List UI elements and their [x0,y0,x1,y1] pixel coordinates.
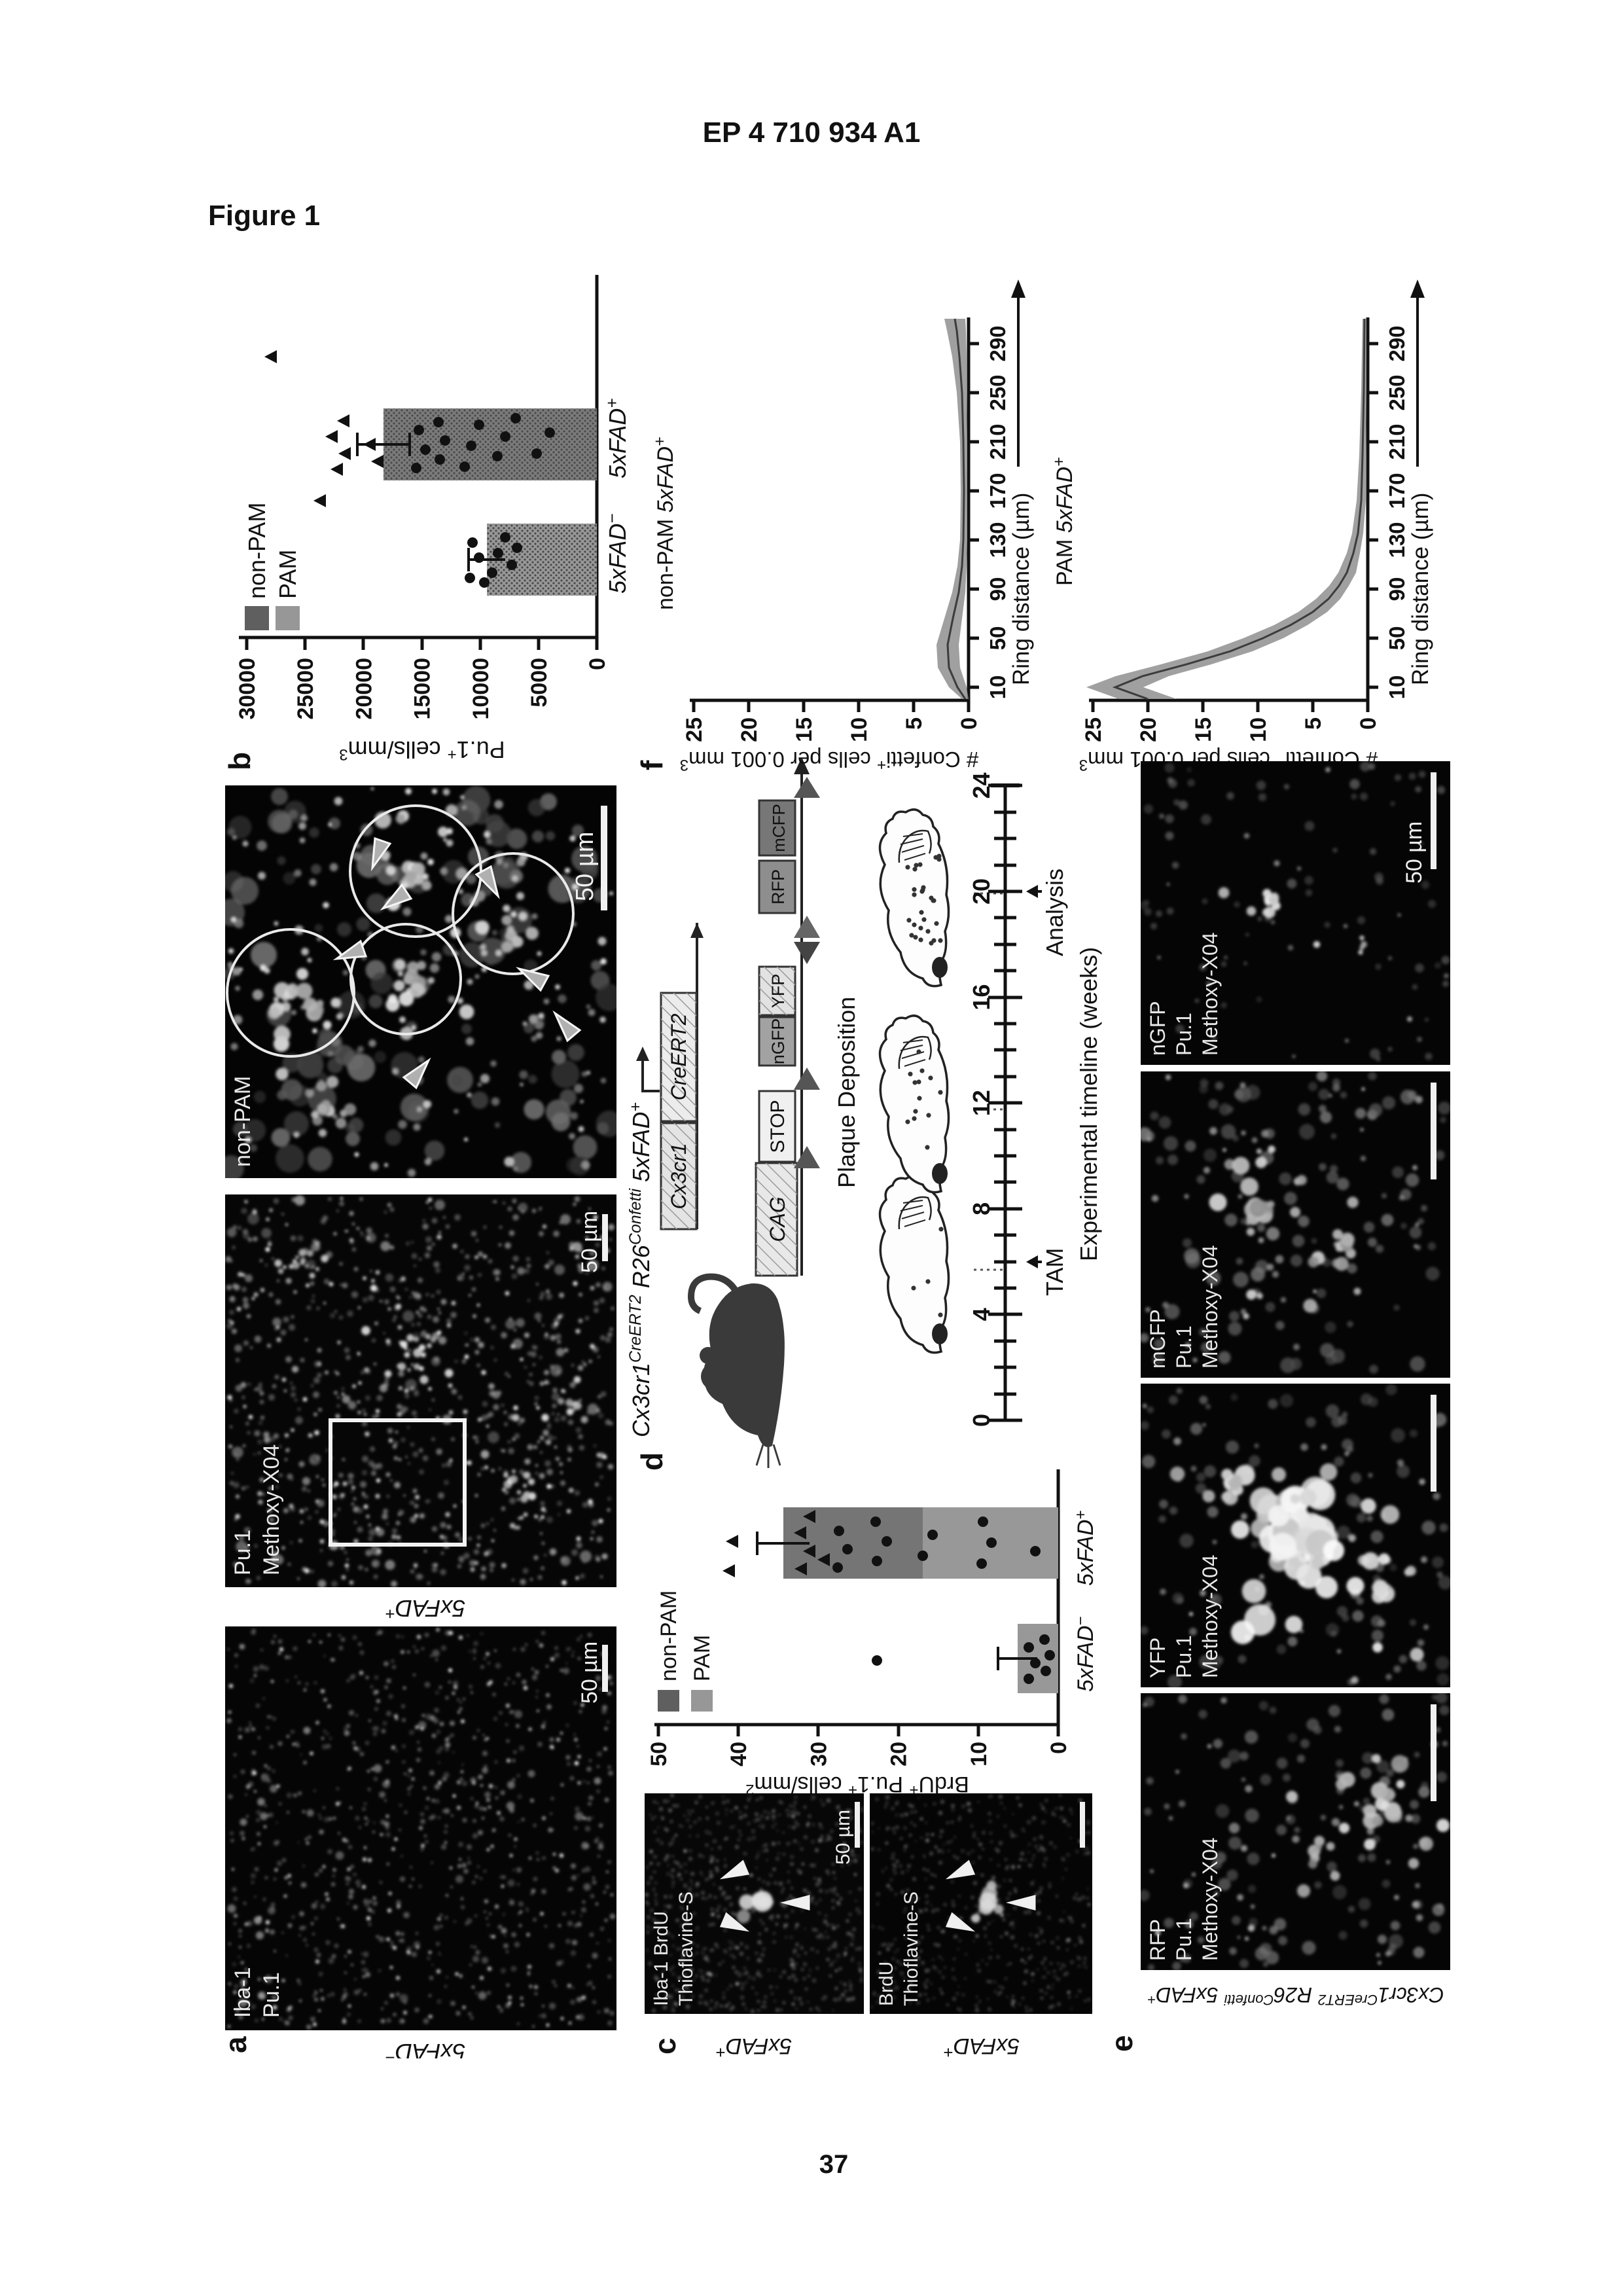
svg-text:16: 16 [968,984,995,1011]
svg-text:Iba-1: Iba-1 [230,1967,255,2018]
svg-text:10: 10 [986,675,1010,700]
svg-text:STOP: STOP [767,1100,789,1153]
svg-text:non-PAM: non-PAM [230,1076,255,1167]
svg-text:30: 30 [806,1742,831,1767]
svg-text:YFP: YFP [1146,1638,1169,1678]
svg-text:Cx3cr1: Cx3cr1 [667,1143,690,1209]
svg-text:PAM 5xFAD+: PAM 5xFAD+ [1050,457,1077,586]
svg-text:non-PAM: non-PAM [656,1590,681,1681]
svg-text:5000: 5000 [527,658,552,708]
svg-text:15: 15 [1191,717,1216,742]
svg-text:Ring distance (µm): Ring distance (µm) [1008,493,1034,685]
svg-text:40: 40 [726,1742,751,1767]
svg-text:PAM: PAM [274,550,301,599]
svg-text:0: 0 [585,658,610,670]
svg-text:20: 20 [968,878,995,905]
svg-text:Thioflavine-S: Thioflavine-S [901,1892,922,2006]
svg-text:8: 8 [968,1202,995,1215]
svg-text:0: 0 [1046,1742,1071,1754]
svg-text:50 µm: 50 µm [577,1211,602,1273]
svg-text:130: 130 [986,522,1010,558]
svg-text:YFP: YFP [768,974,788,1009]
svg-text:4: 4 [968,1308,995,1321]
svg-text:Iba-1 BrdU: Iba-1 BrdU [651,1911,672,2006]
svg-text:50 µm: 50 µm [1402,821,1427,884]
svg-text:25: 25 [1081,717,1106,742]
svg-text:nGFP: nGFP [1146,1001,1169,1056]
svg-text:Pu.1: Pu.1 [230,1530,255,1575]
svg-text:Cx3cr1CreERT2 R26Confetti 5xFA: Cx3cr1CreERT2 R26Confetti 5xFAD+ [1147,1983,1444,2008]
svg-text:b: b [223,752,257,770]
svg-text:mCFP: mCFP [769,804,789,852]
svg-text:e: e [1105,2035,1139,2052]
svg-text:50: 50 [647,1742,671,1767]
svg-text:# Confetti+ cells per 0.001 mm: # Confetti+ cells per 0.001 mm3 [680,747,979,774]
svg-text:f: f [635,760,669,770]
svg-text:Pu.1: Pu.1 [1172,1325,1196,1369]
svg-text:PAM: PAM [690,1635,715,1681]
svg-text:TAM: TAM [1041,1248,1068,1296]
svg-text:Pu.1: Pu.1 [1172,1635,1196,1678]
svg-text:10: 10 [1385,675,1409,700]
svg-text:10: 10 [1246,717,1271,742]
svg-text:Cx3cr1CreERT2 R26Confetti 5xFA: Cx3cr1CreERT2 R26Confetti 5xFAD+ [626,1102,654,1437]
svg-text:50: 50 [1385,626,1409,651]
svg-text:Plaque Deposition: Plaque Deposition [833,997,860,1188]
svg-text:170: 170 [1385,473,1409,509]
svg-text:50 µm: 50 µm [571,832,599,901]
svg-text:5xFAD+: 5xFAD+ [1072,1511,1098,1586]
svg-text:0: 0 [1356,717,1381,730]
svg-text:Pu.1: Pu.1 [1172,1013,1196,1056]
svg-text:10: 10 [967,1742,991,1767]
svg-text:20: 20 [1136,717,1161,742]
svg-text:20: 20 [737,717,762,742]
svg-text:Pu.1+ cells/mm3: Pu.1+ cells/mm3 [339,736,505,763]
svg-text:290: 290 [1385,325,1409,361]
svg-text:CreERT2: CreERT2 [667,1013,690,1100]
svg-text:50 µm: 50 µm [577,1641,602,1704]
svg-text:90: 90 [986,577,1010,601]
svg-text:BrdU+ Pu.1+ cells/mm2: BrdU+ Pu.1+ cells/mm2 [745,1772,969,1799]
svg-text:15: 15 [792,717,817,742]
svg-text:Methoxy-X04: Methoxy-X04 [1198,1554,1222,1678]
svg-text:20: 20 [887,1742,912,1767]
svg-text:non-PAM: non-PAM [243,503,270,599]
svg-text:RFP: RFP [1146,1919,1169,1961]
svg-text:c: c [648,2037,682,2054]
svg-text:Thioflavine-S: Thioflavine-S [675,1892,697,2006]
svg-text:25: 25 [682,717,707,742]
svg-text:Methoxy-X04: Methoxy-X04 [1198,1837,1222,1961]
svg-text:nGFP: nGFP [768,1018,788,1065]
svg-text:non-PAM 5xFAD+: non-PAM 5xFAD+ [651,437,678,610]
svg-text:90: 90 [1385,577,1409,601]
svg-text:d: d [635,1452,669,1471]
svg-text:5xFAD+: 5xFAD+ [716,2034,793,2058]
svg-text:Methoxy-X04: Methoxy-X04 [1198,932,1222,1056]
svg-text:20000: 20000 [351,658,376,720]
svg-text:5xFAD+: 5xFAD+ [385,1595,466,1624]
svg-text:170: 170 [986,473,1010,509]
svg-text:210: 210 [1385,423,1409,459]
svg-text:30000: 30000 [235,658,260,720]
svg-text:12: 12 [968,1090,995,1116]
svg-text:Ring distance (µm): Ring distance (µm) [1408,493,1433,685]
svg-text:a: a [219,2036,253,2053]
svg-text:Experimental timeline (weeks): Experimental timeline (weeks) [1075,947,1102,1261]
svg-text:50: 50 [986,626,1010,651]
svg-text:130: 130 [1385,522,1409,558]
svg-text:Methoxy-X04: Methoxy-X04 [259,1444,284,1575]
svg-text:290: 290 [986,325,1010,361]
svg-text:5xFAD−: 5xFAD− [602,513,631,594]
svg-text:Pu.1: Pu.1 [259,1972,284,2018]
svg-text:5xFAD−: 5xFAD− [385,2039,466,2058]
svg-text:210: 210 [986,423,1010,459]
svg-text:24: 24 [968,772,995,798]
svg-text:0: 0 [957,717,982,730]
svg-text:15000: 15000 [410,658,435,720]
svg-text:CAG: CAG [766,1196,789,1242]
svg-text:0: 0 [968,1414,995,1427]
svg-text:Methoxy-X04: Methoxy-X04 [1198,1245,1222,1369]
svg-text:5: 5 [1301,717,1326,730]
svg-text:5xFAD+: 5xFAD+ [944,2034,1020,2058]
svg-text:250: 250 [986,374,1010,410]
svg-text:mCFP: mCFP [1146,1309,1169,1369]
svg-text:10000: 10000 [469,658,493,720]
svg-text:RFP: RFP [768,869,788,905]
svg-text:5: 5 [902,717,927,730]
svg-text:5xFAD−: 5xFAD− [1072,1617,1098,1692]
svg-text:BrdU: BrdU [876,1962,897,2006]
svg-text:250: 250 [1385,374,1409,410]
svg-text:10: 10 [847,717,872,742]
svg-text:50 µm: 50 µm [832,1810,854,1865]
svg-text:5xFAD+: 5xFAD+ [602,398,631,478]
svg-text:Pu.1: Pu.1 [1172,1918,1196,1961]
svg-text:Analysis: Analysis [1041,869,1068,956]
svg-text:25000: 25000 [293,658,318,720]
